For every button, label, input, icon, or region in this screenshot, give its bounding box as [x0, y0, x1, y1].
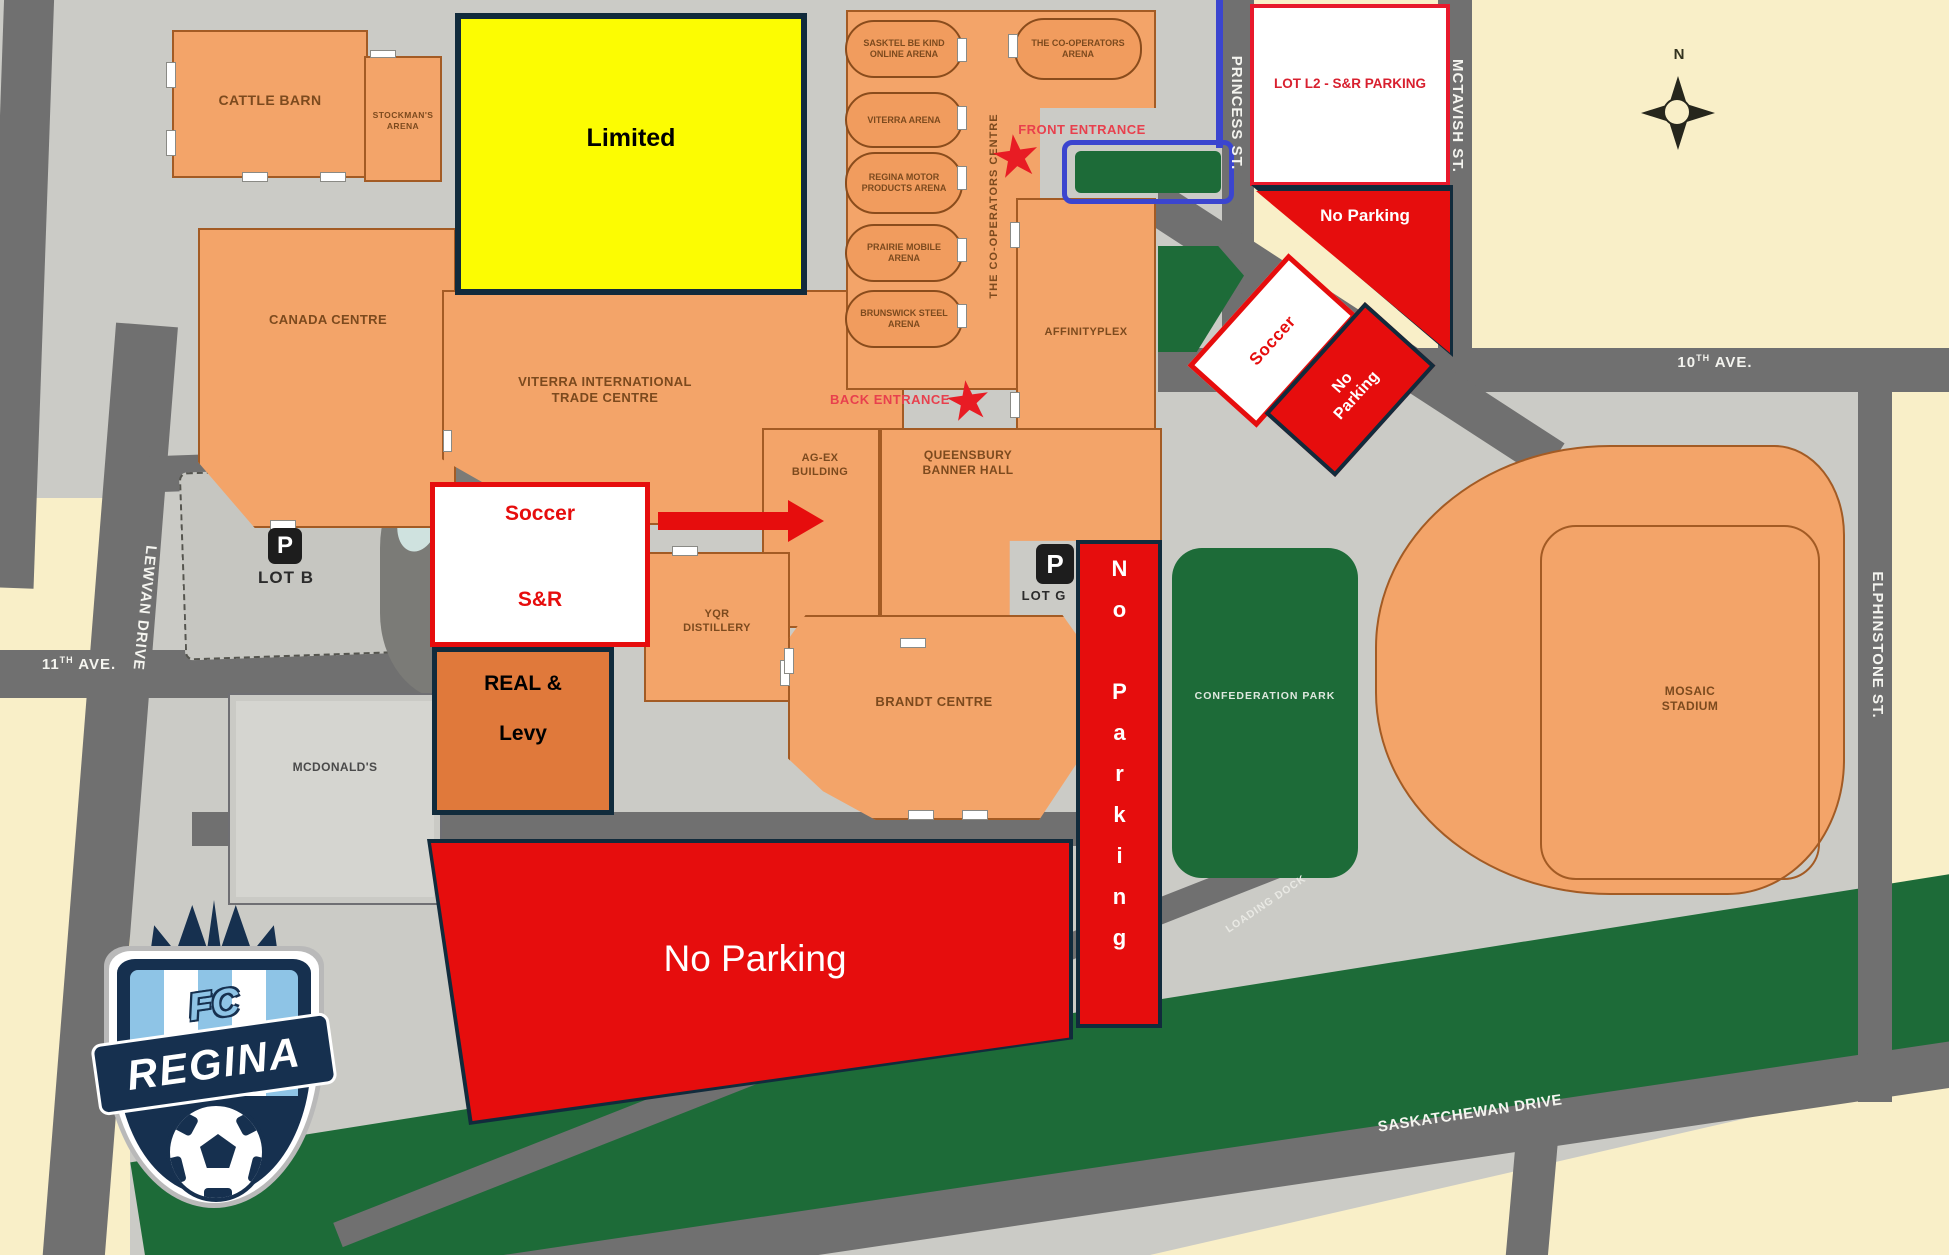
- label-agex: AG-EX BUILDING: [760, 452, 880, 480]
- label-10-num: 10: [1677, 354, 1696, 371]
- door-mark: [1010, 222, 1020, 248]
- arena-regina-motor: REGINA MOTOR PRODUCTS ARENA: [845, 152, 963, 214]
- label-agex-l1: AG-EX: [760, 452, 880, 466]
- label-mctavish-st: MCTAVISH ST.: [1450, 56, 1466, 176]
- label-10th-ave: 10TH AVE.: [1655, 353, 1775, 371]
- label-viterra-l2: TRADE CENTRE: [450, 390, 760, 406]
- label-soccer-diamond: Soccer: [1245, 312, 1300, 370]
- label-11-sup: TH: [60, 655, 74, 665]
- label-yqr-l2: DISTILLERY: [644, 622, 790, 636]
- label-mcdonalds: MCDONALD'S: [228, 760, 442, 775]
- compass-n-label: N: [1664, 46, 1694, 63]
- door-mark: [370, 50, 396, 58]
- zone-lot-l2: [1250, 4, 1450, 186]
- door-mark: [908, 810, 934, 820]
- label-affinityplex: AFFINITYPLEX: [1016, 326, 1156, 340]
- label-11th-ave: 11TH AVE.: [24, 655, 134, 673]
- door-mark: [784, 648, 794, 674]
- ball-patch: [204, 1188, 232, 1202]
- door-mark: [166, 130, 176, 156]
- label-yqr: YQR DISTILLERY: [644, 608, 790, 636]
- door-mark: [672, 546, 698, 556]
- arena-sasktel: SASKTEL BE KIND ONLINE ARENA: [845, 20, 963, 78]
- label-agex-l2: BUILDING: [760, 466, 880, 480]
- campus-parking-map: SASKTEL BE KIND ONLINE ARENA THE CO-OPER…: [0, 0, 1949, 1255]
- arena-cooperators: THE CO-OPERATORS ARENA: [1014, 18, 1142, 80]
- label-mosaic-stadium: MOSAIC STADIUM: [1580, 684, 1800, 714]
- label-yqr-l1: YQR: [644, 608, 790, 622]
- label-brandt: BRANDT CENTRE: [788, 694, 1080, 710]
- back-entrance-star: ★: [940, 371, 995, 431]
- label-cooperators-vertical: THE CO-OPERATORS CENTRE: [988, 56, 1008, 356]
- door-mark: [957, 38, 967, 62]
- door-mark: [957, 304, 967, 328]
- label-11-rest: AVE.: [74, 656, 117, 673]
- arena-label: VITERRA ARENA: [867, 115, 940, 126]
- door-mark: [443, 430, 452, 452]
- door-mark: [957, 106, 967, 130]
- label-stockmans: STOCKMAN'S ARENA: [362, 110, 444, 131]
- ball-patch: [166, 1155, 187, 1186]
- door-mark: [320, 172, 346, 182]
- route-arrow-shaft: [658, 512, 788, 530]
- compass: N: [1640, 46, 1720, 156]
- label-10-sup: TH: [1696, 353, 1710, 363]
- label-real-levy-l2: Levy: [432, 722, 614, 746]
- label-cattle-barn: CATTLE BARN: [180, 92, 360, 110]
- arena-prairie-mobile: PRAIRIE MOBILE ARENA: [845, 224, 963, 282]
- zone-limited: [455, 13, 807, 295]
- label-np-triangle: No Parking: [1285, 206, 1445, 226]
- label-stockmans-text: STOCKMAN'S ARENA: [373, 110, 434, 131]
- label-canada-centre: CANADA CENTRE: [238, 312, 418, 328]
- label-lot-l2: LOT L2 - S&R PARKING: [1256, 76, 1444, 91]
- label-queensbury: QUEENSBURY BANNER HALL: [868, 448, 1068, 478]
- label-soccer-sr-l2: S&R: [430, 588, 650, 612]
- building-brandt-centre: [788, 615, 1080, 820]
- door-mark: [242, 172, 268, 182]
- fc-regina-logo: FC REGINA: [92, 898, 332, 1228]
- arena-label: SASKTEL BE KIND ONLINE ARENA: [850, 38, 958, 60]
- label-elphinstone-st: ELPHINSTONE ST.: [1870, 565, 1886, 725]
- label-mosaic-l1: MOSAIC: [1580, 684, 1800, 699]
- label-10-rest: AVE.: [1710, 354, 1753, 371]
- front-pad: [1075, 151, 1221, 193]
- front-entrance-star: ★: [986, 125, 1046, 190]
- route-blue-line: [1216, 0, 1223, 148]
- label-soccer-sr-l1: Soccer: [430, 502, 650, 526]
- door-mark: [1010, 392, 1020, 418]
- label-viterra-l1: VITERRA INTERNATIONAL: [450, 374, 760, 390]
- road-elphinstone: [1858, 390, 1892, 1102]
- label-np-big: No Parking: [555, 938, 955, 980]
- door-mark: [962, 810, 988, 820]
- door-mark: [957, 166, 967, 190]
- label-queensbury-l2: BANNER HALL: [868, 463, 1068, 478]
- door-mark: [1008, 34, 1018, 58]
- label-confederation-park: CONFEDERATION PARK: [1178, 690, 1352, 702]
- label-lot-b: LOT B: [238, 568, 334, 588]
- arena-brunswick: BRUNSWICK STEEL ARENA: [845, 290, 963, 348]
- confederation-park: [1172, 548, 1358, 878]
- lot-b-p-icon: P: [268, 528, 302, 564]
- label-limited: Limited: [455, 124, 807, 153]
- zone-np-vertical: No Parking: [1076, 540, 1162, 1028]
- building-canada-centre: [198, 228, 456, 528]
- label-viterra-itc: VITERRA INTERNATIONAL TRADE CENTRE: [450, 374, 760, 407]
- label-princess-st: PRINCESS ST.: [1229, 53, 1245, 173]
- door-mark: [900, 638, 926, 648]
- label-confederation-text: CONFEDERATION PARK: [1195, 690, 1336, 702]
- crest-soccer-ball: [166, 1102, 266, 1202]
- arena-label: PRAIRIE MOBILE ARENA: [850, 242, 958, 264]
- ball-pentagon-center: [200, 1134, 236, 1168]
- route-arrow-head: [788, 500, 824, 542]
- building-affinityplex: [1016, 198, 1156, 432]
- lot-g-p-icon: P: [1036, 544, 1074, 584]
- label-queensbury-l1: QUEENSBURY: [868, 448, 1068, 463]
- arena-label: THE CO-OPERATORS ARENA: [1019, 38, 1137, 60]
- crest-regina-text: REGINA: [124, 1028, 304, 1100]
- arena-viterra: VITERRA ARENA: [845, 92, 963, 148]
- door-mark: [957, 238, 967, 262]
- arena-label: BRUNSWICK STEEL ARENA: [850, 308, 958, 330]
- arena-label: REGINA MOTOR PRODUCTS ARENA: [850, 172, 958, 194]
- mcdonalds-building: [228, 693, 442, 905]
- label-np-vertical: No Parking: [1106, 544, 1132, 1024]
- label-11-num: 11: [42, 656, 60, 673]
- label-real-levy-l1: REAL &: [432, 672, 614, 696]
- compass-hub: [1663, 98, 1691, 126]
- label-mosaic-l2: STADIUM: [1580, 699, 1800, 714]
- label-lot-g: LOT G: [1012, 588, 1076, 603]
- door-mark: [166, 62, 176, 88]
